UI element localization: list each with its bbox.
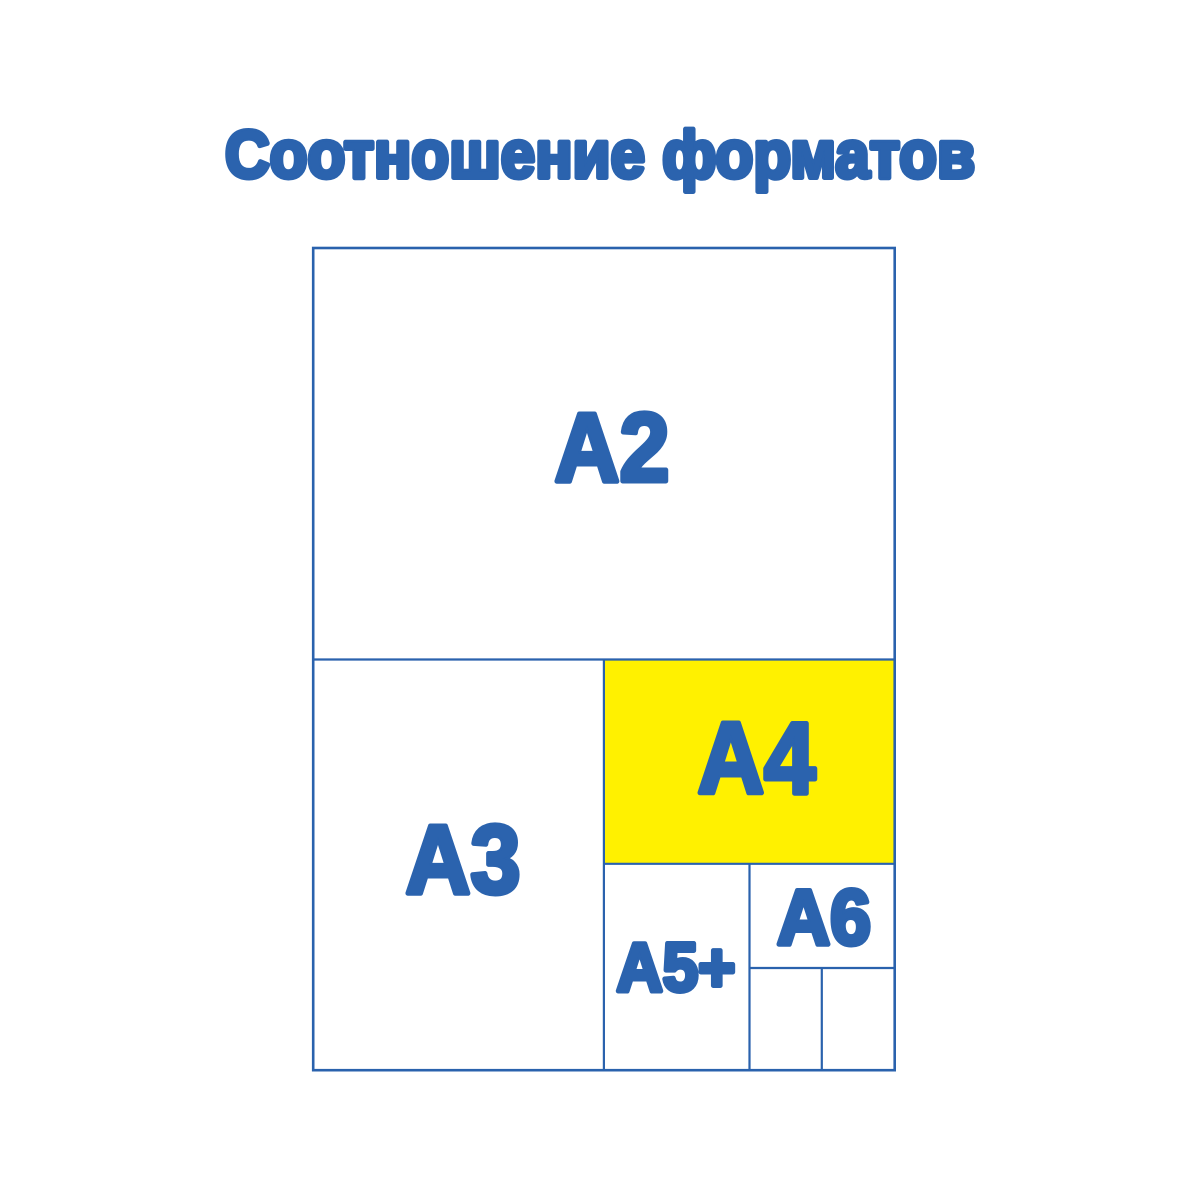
svg-text:Соотношение форматов: Соотношение форматов bbox=[225, 118, 975, 193]
svg-text:A6: A6 bbox=[777, 873, 871, 961]
svg-text:A5+: A5+ bbox=[617, 929, 736, 1006]
svg-text:A2: A2 bbox=[555, 393, 670, 502]
svg-text:A3: A3 bbox=[406, 805, 521, 914]
svg-text:A4: A4 bbox=[698, 703, 816, 815]
